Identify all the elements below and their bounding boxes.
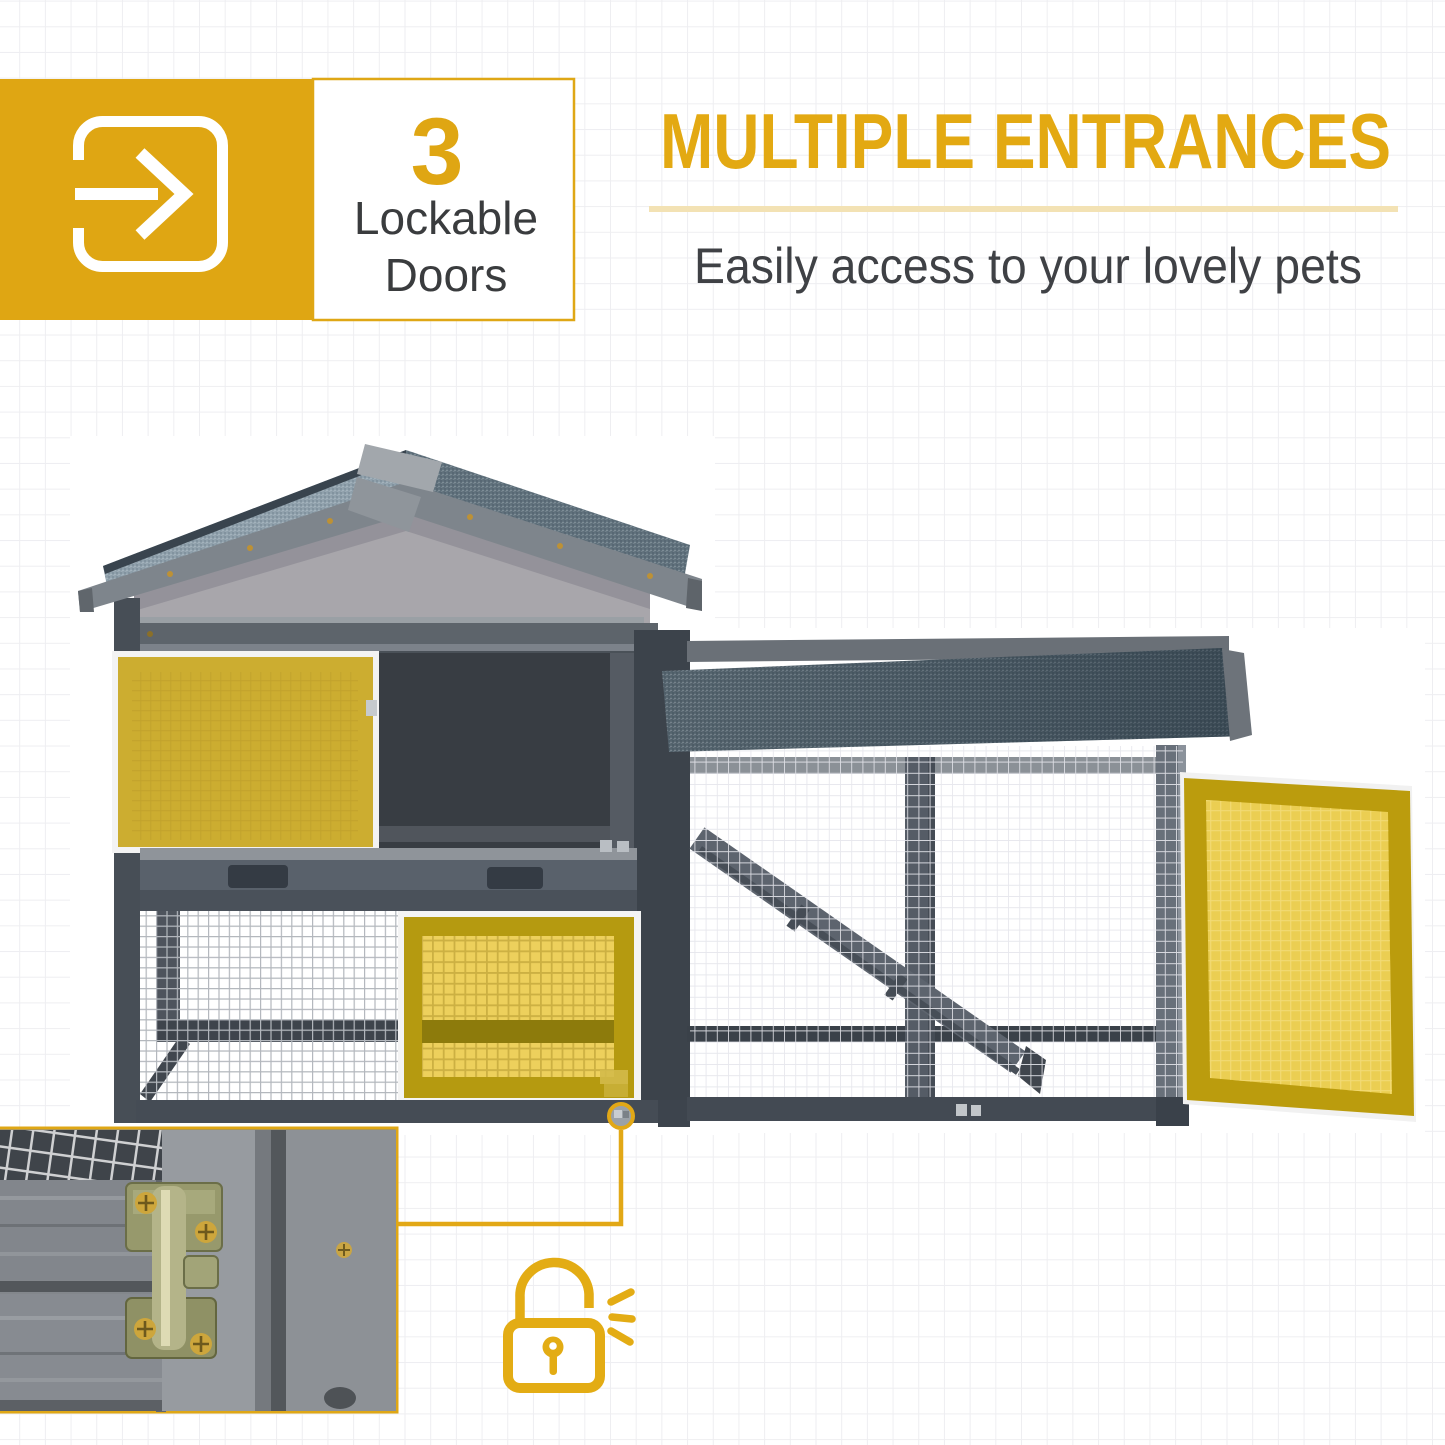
svg-text:Easily access to your lovely p: Easily access to your lovely pets xyxy=(694,238,1362,294)
svg-text:MULTIPLE ENTRANCES: MULTIPLE ENTRANCES xyxy=(660,97,1391,185)
svg-text:3: 3 xyxy=(411,99,464,205)
svg-text:Lockable: Lockable xyxy=(354,192,538,244)
svg-text:Doors: Doors xyxy=(385,249,508,301)
